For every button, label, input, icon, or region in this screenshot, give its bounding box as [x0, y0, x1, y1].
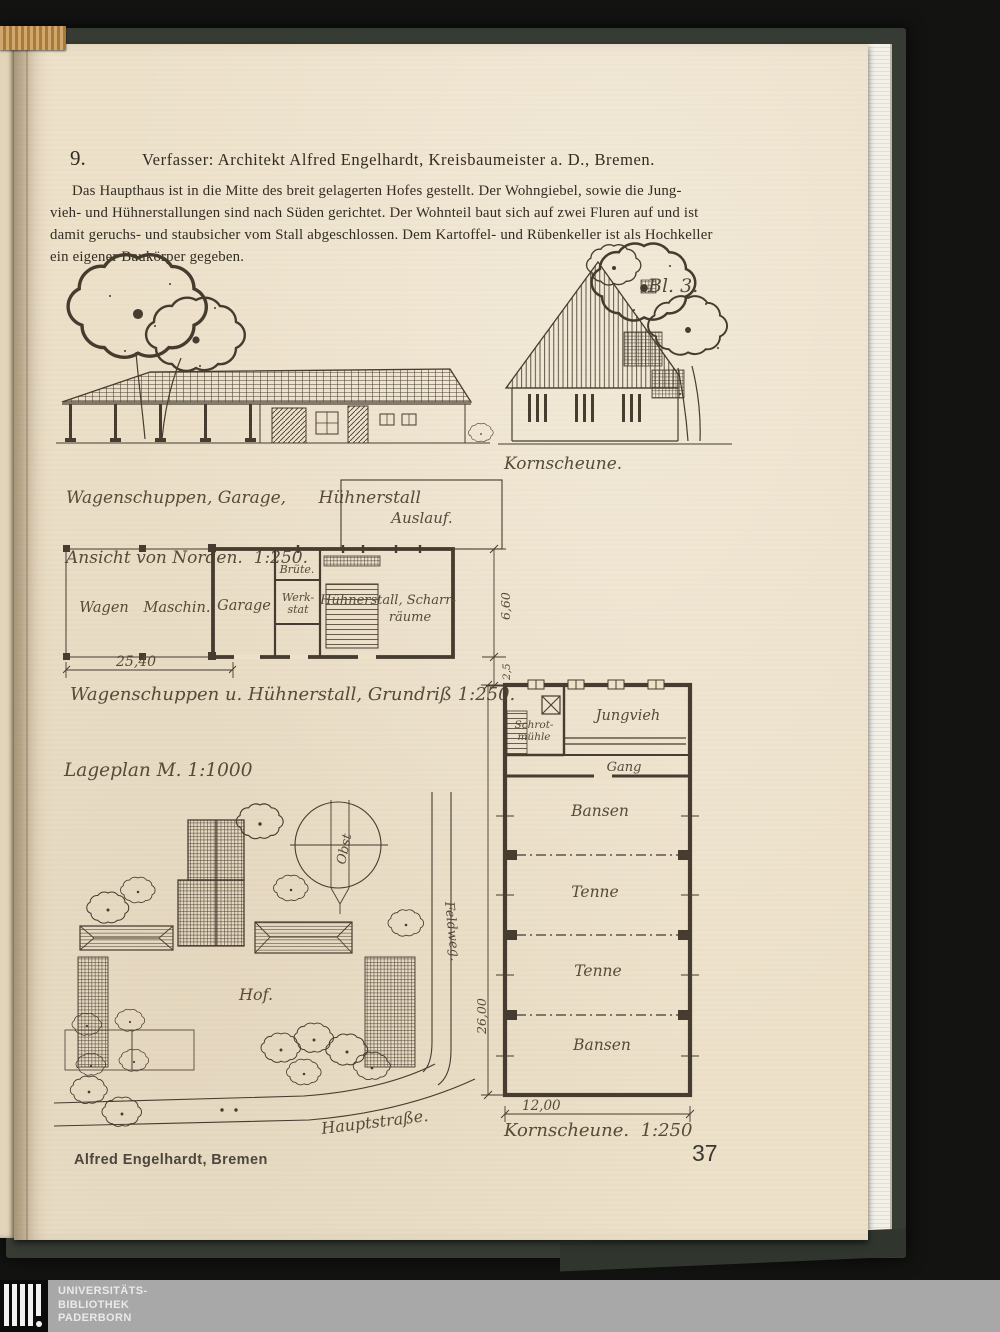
- room-label-bansen-top: Bansen: [570, 802, 629, 820]
- barn-plan-drawing: Schrot- mühle Jungvieh Gang Bansen Tenne…: [476, 666, 711, 1136]
- dim-26-00: 26,00: [474, 998, 489, 1035]
- elevation-right-caption: Kornscheune.: [504, 454, 622, 474]
- item-number: 9.: [70, 146, 86, 171]
- body-line: damit geruchs- und staubsicher vom Stall…: [50, 224, 770, 246]
- page-number: 37: [692, 1140, 718, 1167]
- bookmark-tape: [0, 26, 66, 50]
- label-hof: Hof.: [238, 985, 273, 1004]
- site-plan-drawing: Obst Hof. Hauptstraße. Feldweg.: [54, 792, 484, 1152]
- label-auslauf: Auslauf.: [389, 509, 452, 527]
- dim-25-40: 25,40: [115, 654, 156, 670]
- gutter-crease: [26, 44, 28, 1240]
- dim-6-60: 6,60: [498, 592, 513, 620]
- body-line: Das Haupthaus ist in die Mitte des breit…: [50, 180, 770, 202]
- library-name-line: UNIVERSITÄTS-: [58, 1285, 148, 1299]
- room-label-bruete: Brüte.: [279, 563, 315, 576]
- site-plan-title: Lageplan M. 1:1000: [64, 760, 252, 781]
- elevation-kornscheune-drawing: Bl. 3.: [492, 244, 742, 464]
- room-label-garage: Garage: [217, 598, 271, 614]
- dim-12-00: 12,00: [522, 1098, 561, 1114]
- room-label-raeume: räume: [389, 610, 432, 625]
- page-paper: 9. Verfasser: Architekt Alfred Engelhard…: [14, 44, 868, 1240]
- room-label-werkstatt-2: stat: [287, 603, 309, 616]
- label-feldweg: Feldweg.: [441, 900, 462, 962]
- room-label-gang: Gang: [607, 760, 642, 775]
- barn-plan-caption: Kornscheune. 1:250: [504, 1120, 692, 1141]
- room-label-huehnerstall: Hühnerstall, Scharr-: [319, 593, 456, 608]
- room-label-schrot-2: mühle: [517, 731, 550, 743]
- room-label-schrot-1: Schrot-: [515, 719, 554, 731]
- floor-plan-drawing: Wagen Maschin. Garage Brüte. Werk- stat …: [58, 472, 518, 717]
- room-label-jungvieh: Jungvieh: [593, 708, 661, 724]
- page-title: Verfasser: Architekt Alfred Engelhardt, …: [142, 150, 655, 170]
- label-obst: Obst: [334, 832, 355, 866]
- library-name-line: PADERBORN: [58, 1312, 148, 1326]
- room-label-wagen: Wagen: [79, 600, 129, 616]
- library-name: UNIVERSITÄTS- BIBLIOTHEK PADERBORN: [58, 1285, 148, 1326]
- library-name-line: BIBLIOTHEK: [58, 1299, 148, 1313]
- room-label-maschinen: Maschin.: [143, 600, 211, 616]
- room-label-tenne-2: Tenne: [574, 962, 621, 980]
- elevation-wagenschuppen-drawing: [50, 256, 496, 456]
- room-label-tenne-1: Tenne: [571, 883, 618, 901]
- sheet-number-label: Bl. 3.: [647, 275, 698, 297]
- body-line: vieh- und Hühnerstallungen sind nach Süd…: [50, 202, 770, 224]
- library-logo-icon: [0, 1280, 48, 1332]
- room-label-bansen-bottom: Bansen: [572, 1036, 631, 1054]
- floor-plan-caption: Wagenschuppen u. Hühnerstall, Grundriß 1…: [70, 684, 515, 705]
- author-credit: Alfred Engelhardt, Bremen: [74, 1152, 268, 1168]
- scanned-book-page: 9. Verfasser: Architekt Alfred Engelhard…: [0, 0, 1000, 1332]
- library-watermark-band: UNIVERSITÄTS- BIBLIOTHEK PADERBORN: [0, 1280, 1000, 1332]
